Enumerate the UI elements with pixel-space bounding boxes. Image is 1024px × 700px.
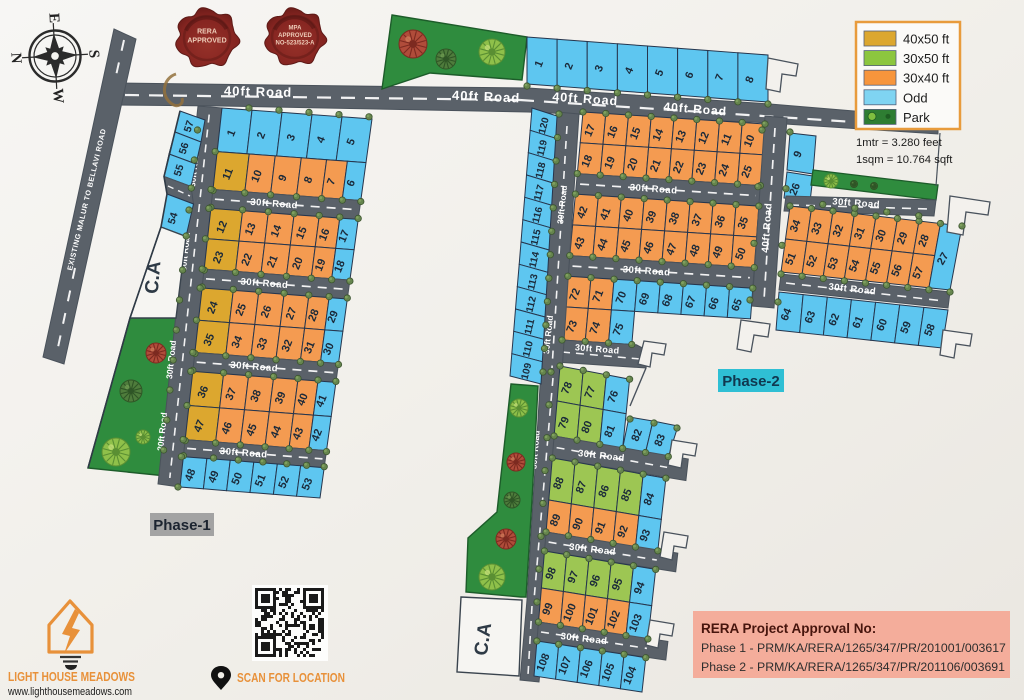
svg-text:Odd: Odd bbox=[903, 90, 928, 105]
svg-text:MPA: MPA bbox=[289, 26, 303, 32]
svg-text:SCAN FOR LOCATION: SCAN FOR LOCATION bbox=[237, 670, 345, 685]
svg-text:1mtr = 3.280 feet: 1mtr = 3.280 feet bbox=[856, 137, 943, 149]
svg-text:1sqm = 10.764 sqft: 1sqm = 10.764 sqft bbox=[856, 154, 953, 166]
svg-text:APPROVED: APPROVED bbox=[278, 33, 312, 39]
svg-text:RERA Project Approval No:: RERA Project Approval No: bbox=[701, 621, 876, 636]
svg-text:Phase 1 - PRM/KA/RERA/1265/347: Phase 1 - PRM/KA/RERA/1265/347/PR/201001… bbox=[701, 641, 1006, 655]
svg-text:www.lighthousemeadows.com: www.lighthousemeadows.com bbox=[7, 686, 132, 698]
svg-text:Phase-1: Phase-1 bbox=[153, 517, 211, 534]
svg-text:LIGHT HOUSE MEADOWS: LIGHT HOUSE MEADOWS bbox=[8, 670, 135, 684]
svg-text:C.A: C.A bbox=[142, 260, 166, 295]
svg-text:40ft Road: 40ft Road bbox=[452, 88, 521, 106]
svg-text:30x40 ft: 30x40 ft bbox=[903, 71, 950, 86]
svg-text:Phase 2 - PRM/KA/RERA/1265/347: Phase 2 - PRM/KA/RERA/1265/347/PR/201106… bbox=[701, 660, 1005, 674]
svg-text:RERA: RERA bbox=[197, 29, 217, 36]
svg-text:40x50 ft: 40x50 ft bbox=[903, 32, 950, 47]
svg-text:E: E bbox=[45, 13, 62, 24]
svg-text:Park: Park bbox=[903, 110, 930, 125]
svg-text:NO-523/523-A: NO-523/523-A bbox=[275, 40, 315, 46]
svg-text:30x50 ft: 30x50 ft bbox=[903, 51, 950, 66]
svg-text:Phase-2: Phase-2 bbox=[722, 373, 780, 390]
svg-text:S: S bbox=[85, 49, 101, 58]
svg-text:40ft Road: 40ft Road bbox=[224, 83, 293, 100]
svg-text:W: W bbox=[49, 88, 66, 104]
svg-text:N: N bbox=[7, 52, 24, 64]
svg-text:APPROVED: APPROVED bbox=[187, 37, 226, 44]
